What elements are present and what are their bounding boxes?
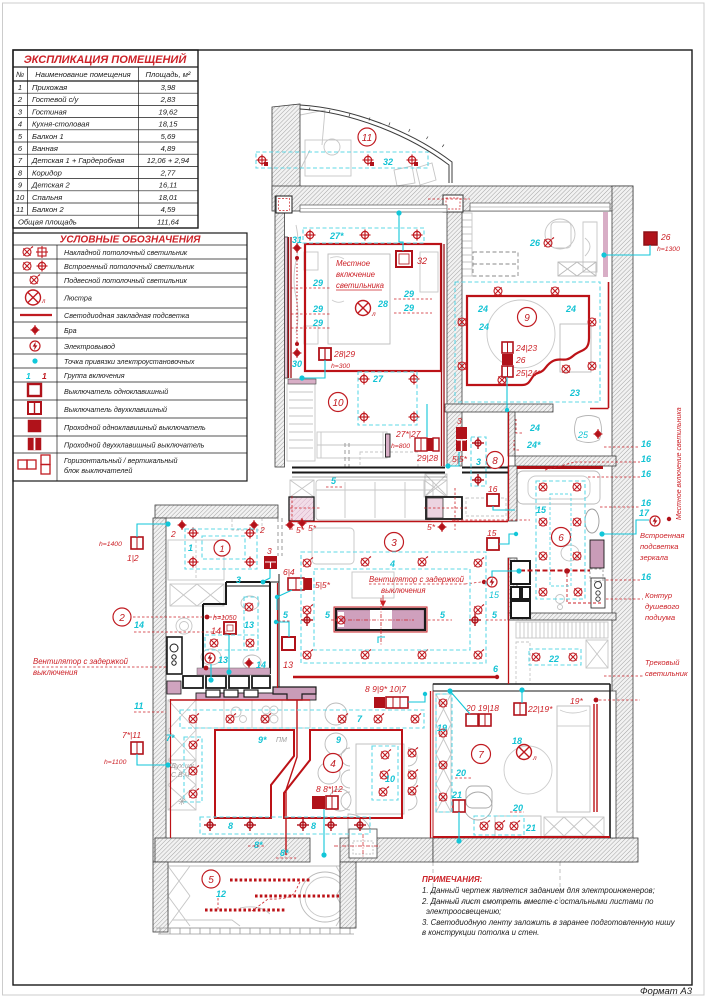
svg-text:h=1300: h=1300 <box>657 246 680 253</box>
svg-text:16: 16 <box>641 454 652 464</box>
svg-text:3,98: 3,98 <box>161 83 177 92</box>
svg-text:Накладной потолочный светильни: Накладной потолочный светильник <box>64 248 188 257</box>
svg-text:20: 20 <box>455 768 466 778</box>
svg-text:19,62: 19,62 <box>158 107 178 116</box>
svg-text:h=1100: h=1100 <box>104 759 127 766</box>
svg-text:18,15: 18,15 <box>158 120 178 129</box>
svg-text:зеркала: зеркала <box>639 553 668 562</box>
svg-text:26: 26 <box>529 238 541 248</box>
svg-text:Вентилятор с задержкой: Вентилятор с задержкой <box>33 657 129 666</box>
svg-text:Местное включение светильника: Местное включение светильника <box>676 407 683 520</box>
svg-text:4: 4 <box>18 120 22 129</box>
svg-text:5*: 5* <box>296 525 305 535</box>
svg-text:16: 16 <box>641 572 652 582</box>
svg-text:Горизонтальный / вертикальный: Горизонтальный / вертикальный <box>64 456 178 465</box>
svg-text:18: 18 <box>512 736 522 746</box>
svg-text:16: 16 <box>488 484 498 494</box>
svg-text:ЭКСПЛИКАЦИЯ ПОМЕЩЕНИЙ: ЭКСПЛИКАЦИЯ ПОМЕЩЕНИЙ <box>24 53 188 66</box>
svg-text:8 9|9* 10|7: 8 9|9* 10|7 <box>365 684 406 694</box>
svg-text:светильника: светильника <box>336 281 385 290</box>
svg-text:13: 13 <box>218 655 228 665</box>
svg-text:УСЛОВНЫЕ ОБОЗНАЧЕНИЯ: УСЛОВНЫЕ ОБОЗНАЧЕНИЯ <box>60 235 202 246</box>
svg-text:3. Светодиодную ленту заложить: 3. Светодиодную ленту заложить в заранее… <box>422 918 676 927</box>
svg-text:2: 2 <box>170 529 176 539</box>
svg-text:28|29: 28|29 <box>333 349 355 359</box>
svg-text:11: 11 <box>362 133 372 144</box>
svg-text:7: 7 <box>478 750 484 761</box>
svg-text:2: 2 <box>118 613 125 624</box>
svg-text:5*: 5* <box>427 522 436 532</box>
svg-text:Гостиная: Гостиная <box>32 107 67 116</box>
svg-text:Детская 2: Детская 2 <box>31 181 70 190</box>
svg-text:Выключатель одноклавишный: Выключатель одноклавишный <box>64 387 168 396</box>
svg-text:21: 21 <box>451 790 462 800</box>
svg-text:Выключатель двухклавишный: Выключатель двухклавишный <box>64 405 167 414</box>
svg-text:h=300: h=300 <box>331 363 350 370</box>
svg-text:15: 15 <box>487 528 497 538</box>
svg-text:15: 15 <box>489 590 500 600</box>
svg-text:Встроенная: Встроенная <box>640 531 684 540</box>
svg-text:7*: 7* <box>166 733 175 743</box>
svg-text:16: 16 <box>641 439 652 449</box>
svg-text:13: 13 <box>244 620 254 630</box>
svg-text:24: 24 <box>477 304 488 314</box>
svg-text:Группа включения: Группа включения <box>64 371 125 380</box>
svg-text:8: 8 <box>311 821 316 831</box>
svg-text:24|23: 24|23 <box>515 343 537 353</box>
svg-text:2. Данный лист смотреть вместе: 2. Данный лист смотреть вместе с остальн… <box>421 897 654 906</box>
svg-text:4,89: 4,89 <box>161 144 177 153</box>
svg-text:Детская 1 + Гардеробная: Детская 1 + Гардеробная <box>31 156 124 165</box>
svg-text:21: 21 <box>525 823 536 833</box>
svg-text:л: л <box>532 755 537 762</box>
svg-text:9: 9 <box>524 313 530 324</box>
svg-text:Встроенный потолочный светильн: Встроенный потолочный светильник <box>64 262 195 271</box>
svg-text:Проходной двухклавишный выключ: Проходной двухклавишный выключатель <box>64 441 205 450</box>
svg-text:24: 24 <box>529 423 540 433</box>
svg-text:Формат А3: Формат А3 <box>640 986 693 997</box>
svg-text:3: 3 <box>391 538 397 549</box>
svg-text:16: 16 <box>641 469 652 479</box>
svg-text:31: 31 <box>292 235 302 245</box>
svg-text:Кухня-столовая: Кухня-столовая <box>32 120 89 129</box>
svg-text:27*: 27* <box>329 231 344 241</box>
svg-text:Трековый: Трековый <box>645 658 680 667</box>
svg-text:10: 10 <box>16 193 25 202</box>
svg-text:1: 1 <box>18 83 22 92</box>
svg-text:19: 19 <box>437 723 447 733</box>
svg-text:душевого: душевого <box>645 602 679 611</box>
svg-text:16: 16 <box>641 498 652 508</box>
svg-text:Площадь, м²: Площадь, м² <box>146 70 191 79</box>
svg-text:23: 23 <box>569 388 580 398</box>
svg-text:19*: 19* <box>570 696 583 706</box>
svg-text:15: 15 <box>536 505 547 515</box>
svg-text:Люстра: Люстра <box>63 294 92 303</box>
svg-text:л: л <box>41 299 46 305</box>
svg-text:12: 12 <box>216 889 226 899</box>
svg-text:29: 29 <box>312 318 323 328</box>
svg-text:16,11: 16,11 <box>159 181 177 190</box>
svg-text:Наименование помещения: Наименование помещения <box>35 70 131 79</box>
svg-text:30: 30 <box>292 359 302 369</box>
svg-text:4,59: 4,59 <box>161 205 177 214</box>
svg-text:26: 26 <box>660 232 671 242</box>
svg-text:подиума: подиума <box>645 613 675 622</box>
svg-text:электроосвещению;: электроосвещению; <box>426 907 501 916</box>
svg-text:9: 9 <box>336 735 341 745</box>
svg-text:32: 32 <box>417 256 427 266</box>
svg-text:3: 3 <box>267 546 272 556</box>
svg-text:в конструкции потолка и стен.: в конструкции потолка и стен. <box>422 928 539 937</box>
svg-text:111,64: 111,64 <box>157 218 179 227</box>
svg-text:блок выключателей: блок выключателей <box>64 466 132 475</box>
svg-text:29: 29 <box>312 278 323 288</box>
svg-text:29|28: 29|28 <box>416 453 438 463</box>
svg-text:ПРИМЕЧАНИЯ:: ПРИМЕЧАНИЯ: <box>422 875 483 884</box>
svg-text:22: 22 <box>548 654 559 664</box>
svg-text:8: 8 <box>228 821 233 831</box>
svg-text:Дух.шк.: Дух.шк. <box>170 763 196 770</box>
svg-text:Гостевой с/у: Гостевой с/у <box>32 95 80 104</box>
svg-text:29: 29 <box>403 303 414 313</box>
svg-text:h=800: h=800 <box>391 443 410 450</box>
svg-text:3: 3 <box>476 457 481 467</box>
svg-text:5|5*: 5|5* <box>315 580 331 590</box>
svg-text:Подвесной потолочный светильни: Подвесной потолочный светильник <box>64 276 187 285</box>
svg-text:7*|11: 7*|11 <box>122 730 141 740</box>
svg-text:8*: 8* <box>280 848 289 858</box>
svg-text:24: 24 <box>478 322 489 332</box>
svg-text:Точка привязки электроустаново: Точка привязки электроустановочных <box>64 357 195 366</box>
svg-text:Спальня: Спальня <box>32 193 62 202</box>
svg-text:6: 6 <box>558 533 564 544</box>
svg-text:8: 8 <box>492 456 498 467</box>
svg-text:3: 3 <box>236 575 241 585</box>
svg-text:25|24*: 25|24* <box>515 368 541 378</box>
svg-text:20 19|18: 20 19|18 <box>465 703 499 713</box>
svg-text:20: 20 <box>512 803 523 813</box>
svg-text:14: 14 <box>134 620 144 630</box>
svg-text:h=1400: h=1400 <box>99 541 122 548</box>
svg-text:светильник: светильник <box>645 669 688 678</box>
svg-text:3: 3 <box>457 416 462 426</box>
svg-text:Прихожая: Прихожая <box>32 83 67 92</box>
svg-text:Местное: Местное <box>336 259 371 268</box>
svg-text:27: 27 <box>372 374 384 384</box>
svg-text:1: 1 <box>26 371 31 381</box>
svg-text:28: 28 <box>377 299 388 309</box>
svg-text:л: л <box>371 311 376 318</box>
svg-text:5,69: 5,69 <box>161 132 177 141</box>
svg-text:подсветка: подсветка <box>640 542 678 551</box>
svg-text:4: 4 <box>330 759 336 770</box>
svg-text:Электровывод: Электровывод <box>64 342 115 351</box>
svg-text:1. Данный чертеж является зада: 1. Данный чертеж является заданием для э… <box>422 886 655 895</box>
svg-text:выключения: выключения <box>381 586 426 595</box>
svg-text:11: 11 <box>134 701 143 711</box>
svg-text:1: 1 <box>219 544 224 555</box>
svg-text:10: 10 <box>332 398 344 409</box>
svg-text:5*: 5* <box>308 523 317 533</box>
svg-text:1: 1 <box>42 371 47 381</box>
svg-text:8 8*|12: 8 8*|12 <box>316 784 343 794</box>
svg-text:Проходной одноклавишный выключ: Проходной одноклавишный выключатель <box>64 423 206 432</box>
svg-text:32: 32 <box>383 157 393 167</box>
svg-text:10: 10 <box>385 774 395 784</box>
svg-text:6|4: 6|4 <box>283 567 295 577</box>
svg-text:2: 2 <box>17 95 23 104</box>
svg-text:25: 25 <box>577 430 589 440</box>
svg-text:13: 13 <box>283 660 293 670</box>
svg-text:Балкон 1: Балкон 1 <box>32 132 64 141</box>
svg-text:24: 24 <box>565 304 576 314</box>
svg-text:14: 14 <box>256 660 266 670</box>
svg-text:29: 29 <box>312 304 323 314</box>
svg-text:8*: 8* <box>254 840 263 850</box>
svg-text:Ванная: Ванная <box>32 144 58 153</box>
svg-text:Общая площадь: Общая площадь <box>18 218 77 227</box>
svg-text:17: 17 <box>639 508 650 518</box>
svg-text:включение: включение <box>336 270 376 279</box>
svg-text:22|19*: 22|19* <box>527 704 553 714</box>
svg-text:26: 26 <box>515 355 526 365</box>
svg-text:Контур: Контур <box>645 591 672 600</box>
svg-text:4: 4 <box>389 559 395 569</box>
svg-text:5|5*: 5|5* <box>452 454 468 464</box>
svg-text:ПМ: ПМ <box>276 737 287 744</box>
svg-text:11: 11 <box>16 205 24 214</box>
svg-text:2,77: 2,77 <box>160 168 177 177</box>
svg-text:29: 29 <box>403 289 414 299</box>
svg-text:1: 1 <box>188 543 193 553</box>
svg-text:18,01: 18,01 <box>158 193 177 202</box>
svg-text:24*: 24* <box>526 440 541 450</box>
svg-text:2: 2 <box>259 525 265 535</box>
svg-text:Бра: Бра <box>64 326 77 335</box>
svg-text:h=1050: h=1050 <box>213 615 237 622</box>
svg-text:Вентилятор с задержкой: Вентилятор с задержкой <box>369 575 465 584</box>
svg-text:Балкон 2: Балкон 2 <box>32 205 64 214</box>
svg-text:1|2: 1|2 <box>127 553 139 563</box>
svg-text:9*: 9* <box>258 735 267 745</box>
svg-text:№: № <box>16 70 24 79</box>
svg-text:Коридор: Коридор <box>32 168 62 177</box>
svg-text:С.В.Ч.: С.В.Ч. <box>171 772 191 779</box>
svg-text:Светодиодная закладная подсвет: Светодиодная закладная подсветка <box>64 311 189 320</box>
svg-text:2,83: 2,83 <box>160 95 177 104</box>
svg-text:выключения: выключения <box>33 668 78 677</box>
svg-text:12,06 + 2,94: 12,06 + 2,94 <box>147 156 189 165</box>
svg-text:5: 5 <box>208 875 214 886</box>
